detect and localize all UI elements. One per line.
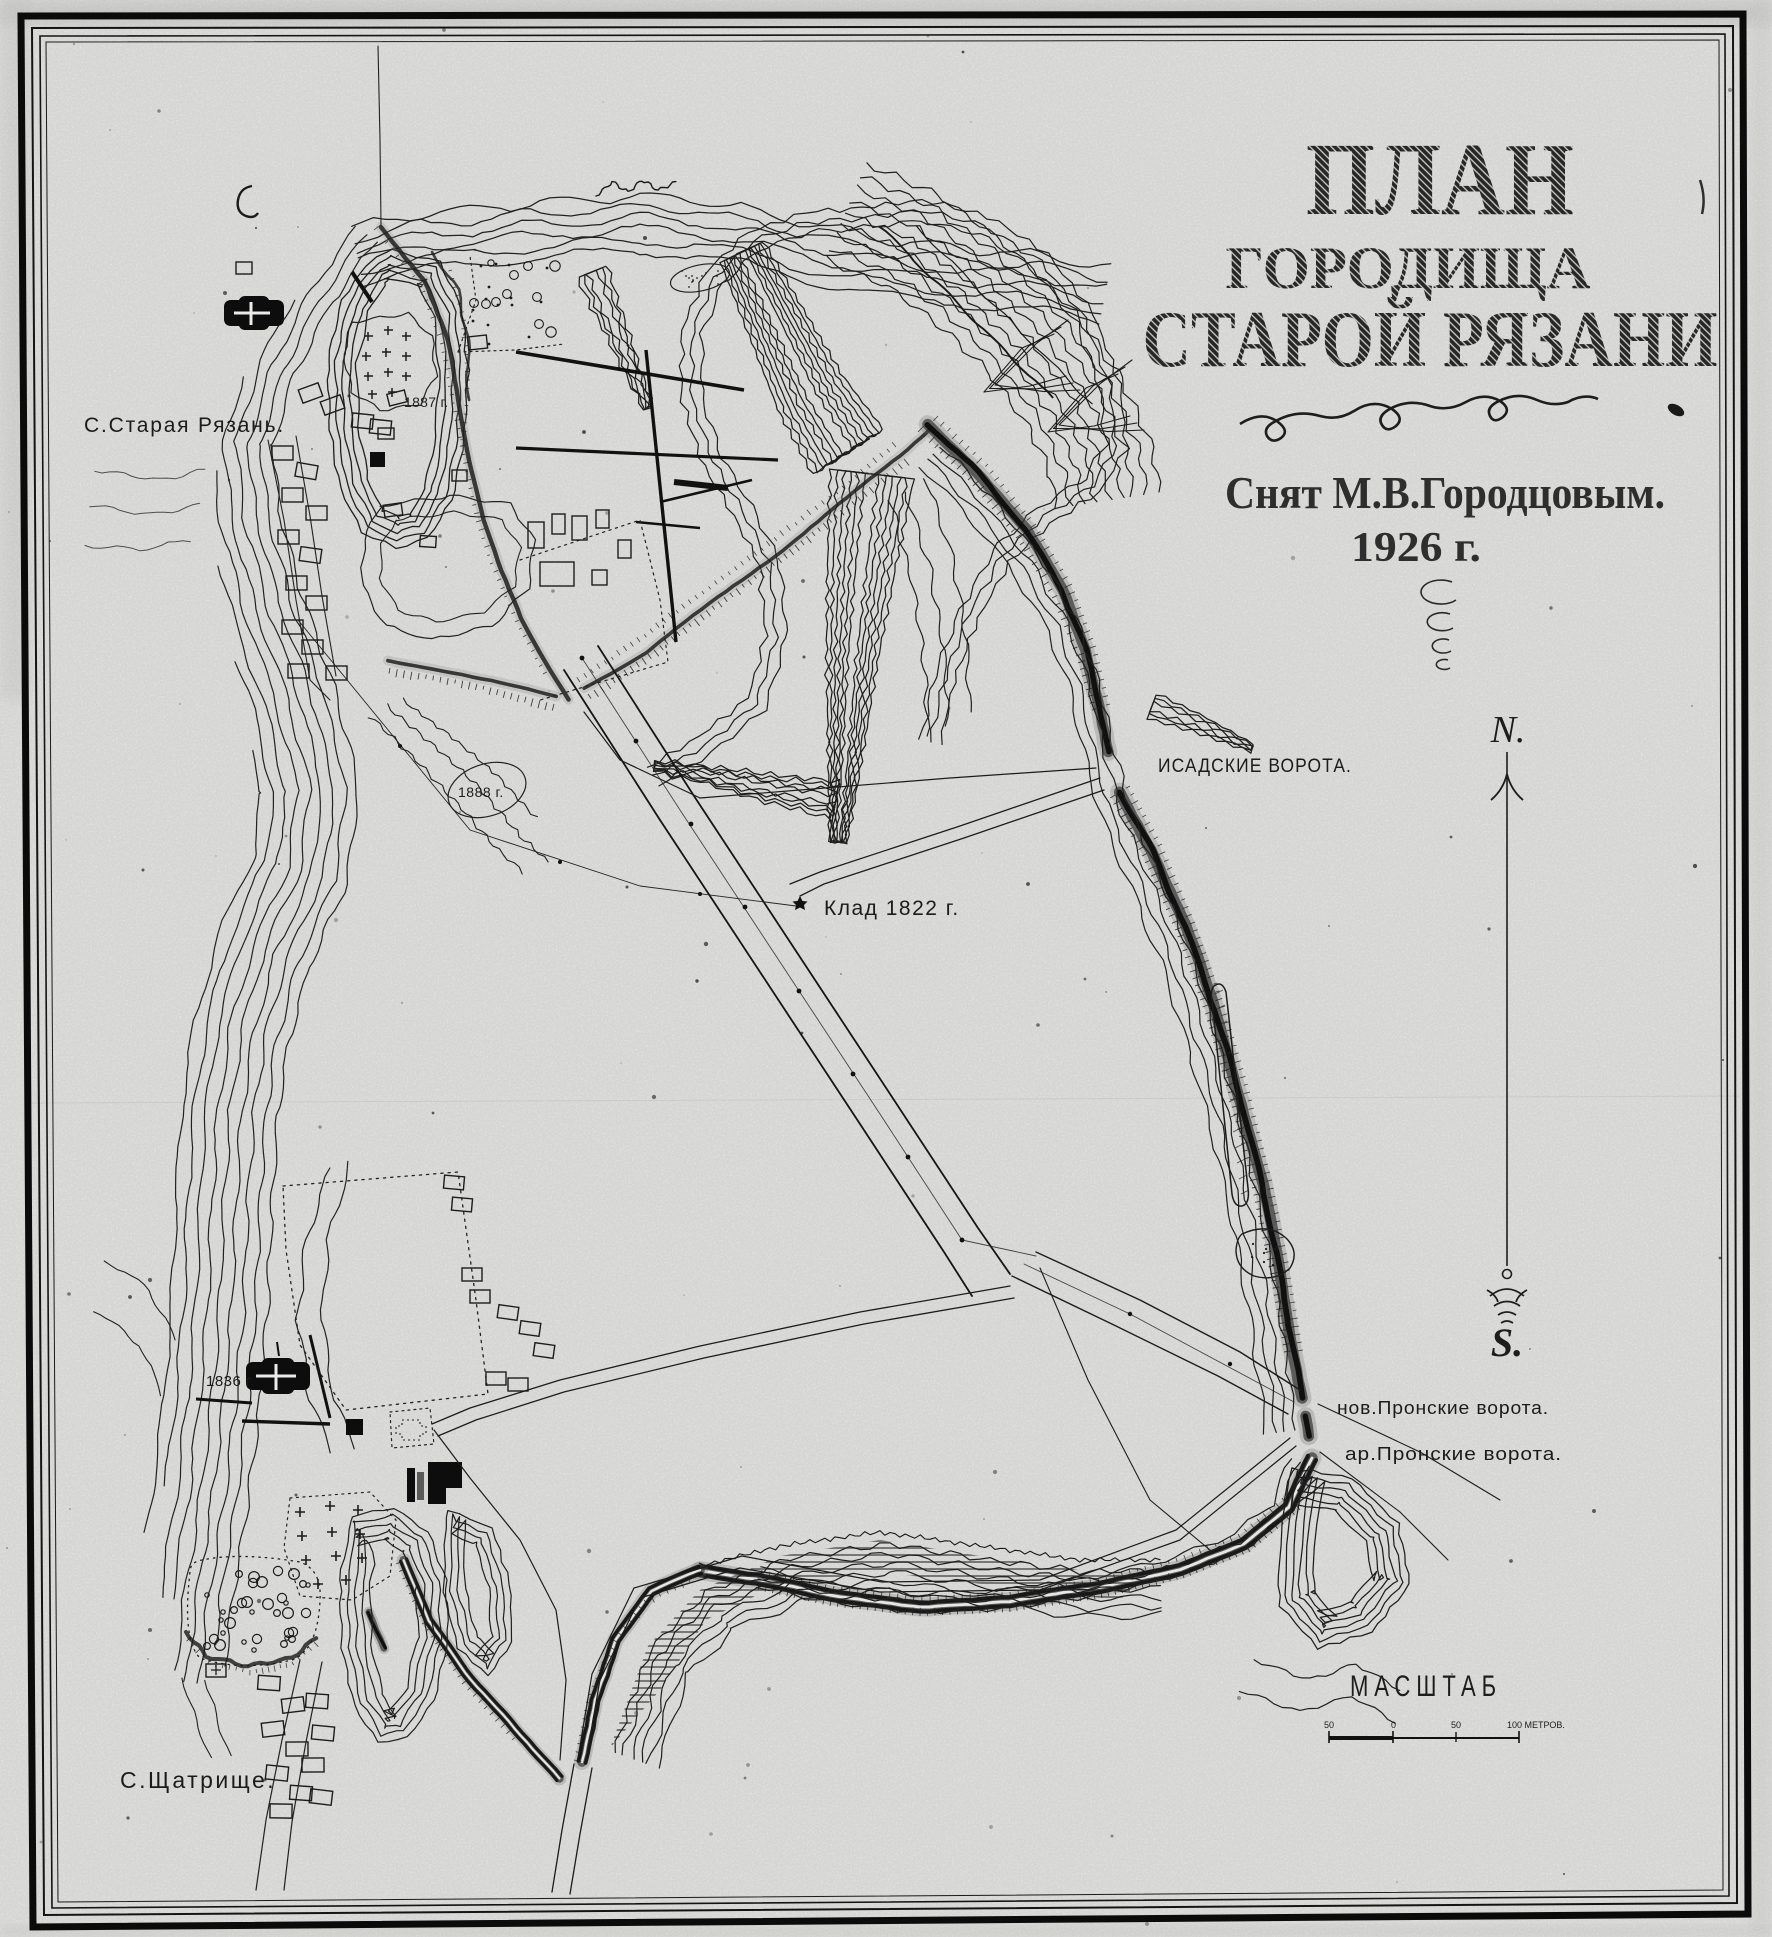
svg-text:Снят М.В.Городцовым.: Снят М.В.Городцовым. — [1225, 467, 1665, 518]
svg-text:ар.Пронские ворота.: ар.Пронские ворота. — [1345, 1444, 1562, 1464]
svg-text:Клад 1822 г.: Клад 1822 г. — [824, 897, 960, 920]
svg-text:1926 г.: 1926 г. — [1351, 525, 1481, 571]
svg-text:50: 50 — [1451, 1720, 1461, 1730]
svg-text:N.: N. — [1490, 709, 1526, 751]
svg-text:50: 50 — [1324, 1720, 1334, 1730]
svg-text:1887 г.: 1887 г. — [404, 394, 448, 410]
svg-text:СТАРОЙ РЯЗАНИ: СТАРОЙ РЯЗАНИ — [1143, 296, 1718, 384]
svg-text:МАСШТАБ: МАСШТАБ — [1350, 1670, 1502, 1703]
svg-text:ПЛАН: ПЛАН — [1306, 122, 1574, 237]
svg-text:С.Щатрище.: С.Щатрище. — [120, 1767, 276, 1793]
svg-text:С.Старая Рязань.: С.Старая Рязань. — [84, 414, 285, 437]
svg-text:1888 г.: 1888 г. — [458, 784, 504, 800]
svg-text:ИСАДСКИЕ ВОРОТА.: ИСАДСКИЕ ВОРОТА. — [1158, 756, 1352, 777]
svg-text:1836 г.: 1836 г. — [206, 1373, 255, 1390]
svg-text:S.: S. — [1491, 1320, 1523, 1365]
svg-text:нов.Пронские ворота.: нов.Пронские ворота. — [1337, 1398, 1549, 1418]
svg-text:ГОРОДИЩА: ГОРОДИЩА — [1226, 235, 1591, 301]
svg-text:100 МЕТРОВ.: 100 МЕТРОВ. — [1507, 1720, 1565, 1730]
svg-text:0: 0 — [1391, 1720, 1396, 1730]
